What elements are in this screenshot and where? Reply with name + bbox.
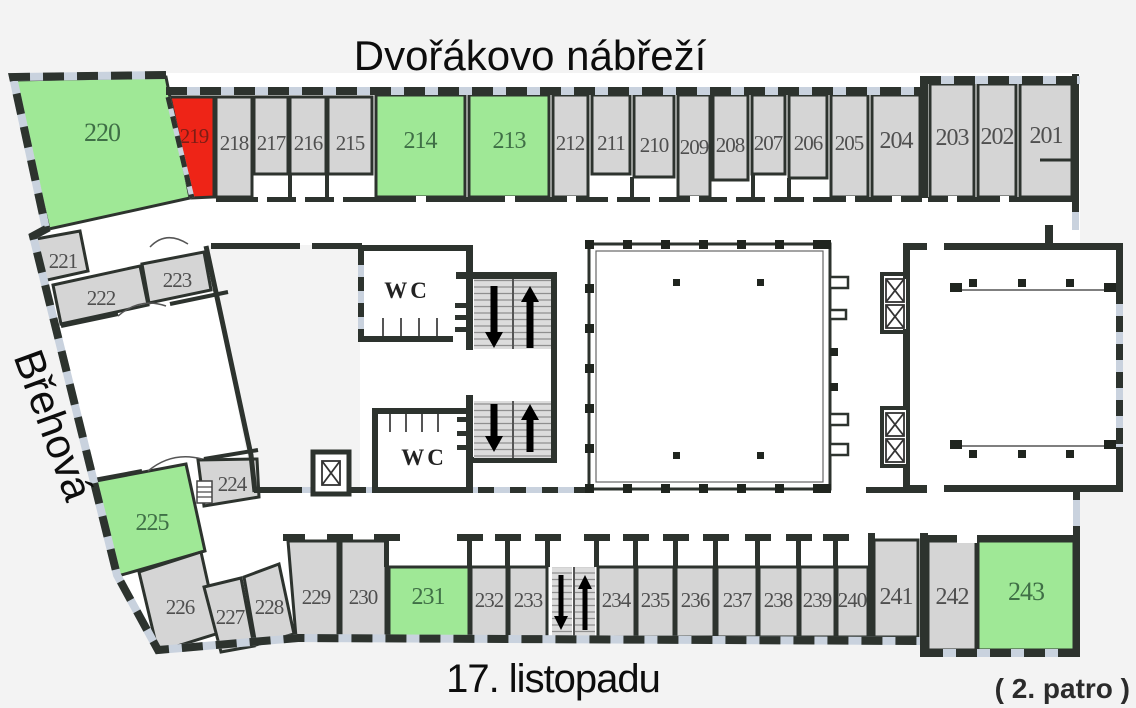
svg-text:216: 216 <box>294 131 323 155</box>
street-top: Dvořákovo nábřeží <box>354 32 707 79</box>
svg-text:238: 238 <box>764 588 793 612</box>
room-205: 205 <box>831 95 868 197</box>
street-bottom: 17. listopadu <box>446 657 660 701</box>
room-231: 231 <box>389 567 469 637</box>
svg-text:202: 202 <box>981 124 1014 150</box>
svg-text:221: 221 <box>49 249 78 273</box>
svg-text:223: 223 <box>163 268 192 292</box>
svg-text:230: 230 <box>349 585 378 609</box>
elevator-icon <box>882 274 908 332</box>
room-204: 204 <box>872 95 920 197</box>
svg-text:225: 225 <box>136 510 170 536</box>
room-237: 237 <box>717 567 757 637</box>
room-209: 209 <box>678 95 710 197</box>
svg-text:205: 205 <box>835 131 864 155</box>
room-239: 239 <box>800 567 835 637</box>
room-240: 240 <box>837 567 868 637</box>
svg-text:207: 207 <box>754 131 783 155</box>
svg-text:219: 219 <box>180 124 209 148</box>
svg-text:212: 212 <box>556 131 585 155</box>
wc-label: WC <box>384 278 430 303</box>
wc-label: WC <box>401 445 447 470</box>
svg-text:224: 224 <box>218 472 248 496</box>
svg-text:201: 201 <box>1030 123 1063 149</box>
room-203: 203 <box>930 84 974 197</box>
room-207: 207 <box>752 95 785 174</box>
room-243: 243 <box>978 541 1074 650</box>
floor-note: ( 2. patro ) <box>995 673 1130 704</box>
svg-text:220: 220 <box>84 118 121 147</box>
svg-text:214: 214 <box>404 128 438 154</box>
room-229: 229 <box>288 541 338 637</box>
room-208: 208 <box>713 95 748 180</box>
svg-text:227: 227 <box>216 605 245 629</box>
svg-text:241: 241 <box>880 584 913 610</box>
floor-plan: 220 219 218 217 216 215 214 213 212 211 … <box>0 0 1136 708</box>
room-216: 216 <box>290 97 326 174</box>
room-241: 241 <box>874 540 918 637</box>
room-238: 238 <box>759 567 798 637</box>
svg-text:234: 234 <box>602 588 632 612</box>
elevator-icon <box>882 408 908 466</box>
room-212: 212 <box>553 95 588 197</box>
room-218: 218 <box>216 97 252 197</box>
svg-text:218: 218 <box>220 131 249 155</box>
svg-text:232: 232 <box>475 588 504 612</box>
svg-text:213: 213 <box>493 128 527 154</box>
svg-text:211: 211 <box>597 131 625 155</box>
room-235: 235 <box>637 567 674 637</box>
elevator-icon <box>313 452 349 494</box>
svg-text:209: 209 <box>680 135 709 159</box>
svg-text:204: 204 <box>880 128 914 154</box>
svg-text:208: 208 <box>716 133 745 157</box>
svg-text:240: 240 <box>838 588 867 612</box>
svg-text:217: 217 <box>257 131 286 155</box>
room-233: 233 <box>509 567 547 637</box>
svg-text:236: 236 <box>681 588 710 612</box>
svg-text:243: 243 <box>1008 577 1044 606</box>
svg-text:222: 222 <box>87 286 116 310</box>
room-234: 234 <box>598 567 635 637</box>
room-232: 232 <box>471 567 507 637</box>
svg-text:210: 210 <box>640 133 669 157</box>
svg-text:206: 206 <box>794 131 823 155</box>
svg-text:215: 215 <box>336 131 365 155</box>
south-staircase <box>552 567 595 637</box>
svg-text:229: 229 <box>302 585 331 609</box>
room-211: 211 <box>592 95 630 174</box>
small-stairs <box>197 481 212 503</box>
room-214: 214 <box>376 95 465 197</box>
room-236: 236 <box>676 567 714 637</box>
svg-text:228: 228 <box>255 595 284 619</box>
room-206: 206 <box>789 95 827 178</box>
room-230: 230 <box>341 541 386 637</box>
svg-text:233: 233 <box>514 588 543 612</box>
svg-text:231: 231 <box>412 584 445 610</box>
room-217: 217 <box>254 97 288 174</box>
svg-text:237: 237 <box>723 588 752 612</box>
svg-text:239: 239 <box>803 588 832 612</box>
room-202: 202 <box>978 84 1016 197</box>
room-201: 201 <box>1020 84 1072 197</box>
room-210: 210 <box>634 95 674 177</box>
room-242: 242 <box>928 541 976 650</box>
svg-text:242: 242 <box>936 584 969 610</box>
svg-text:203: 203 <box>936 125 970 151</box>
room-215: 215 <box>328 97 372 174</box>
svg-text:235: 235 <box>641 588 670 612</box>
courtyard-hall <box>585 240 848 493</box>
room-213: 213 <box>469 95 549 197</box>
svg-text:226: 226 <box>166 595 195 619</box>
